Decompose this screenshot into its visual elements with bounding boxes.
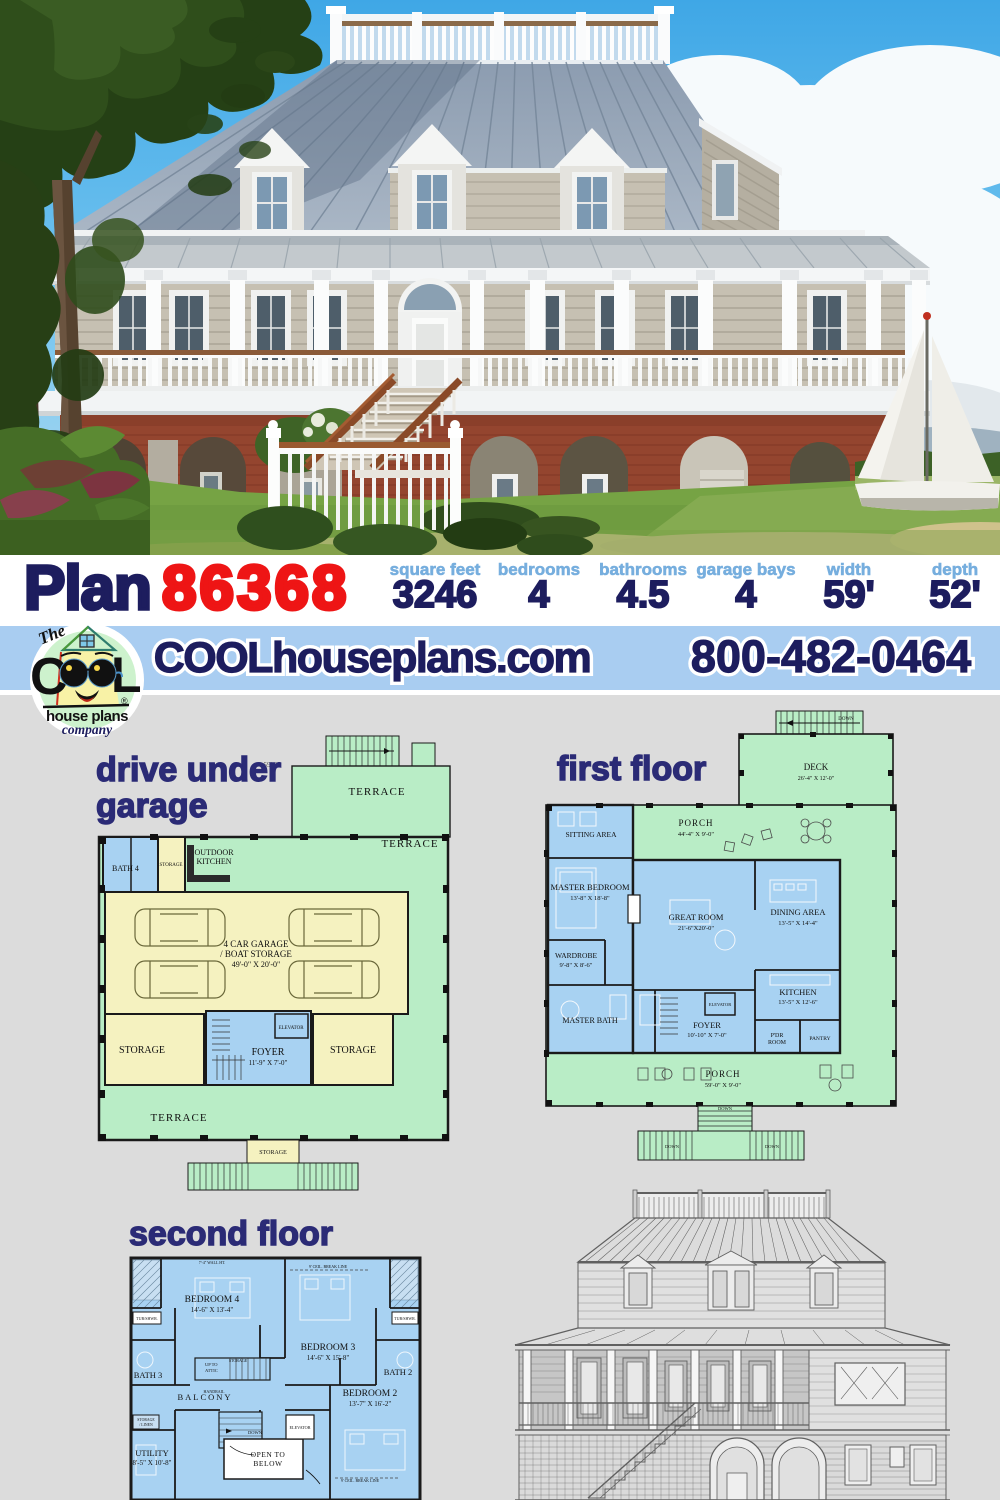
svg-text:BEDROOM 4: BEDROOM 4: [185, 1295, 240, 1305]
svg-text:TERRACE: TERRACE: [381, 838, 438, 850]
svg-text:FOYER: FOYER: [252, 1047, 285, 1058]
svg-text:ELEVATOR: ELEVATOR: [289, 1425, 310, 1430]
svg-text:BATH 2: BATH 2: [384, 1367, 413, 1377]
svg-text:STORAGE: STORAGE: [330, 1045, 376, 1056]
svg-text:DOWN: DOWN: [718, 1106, 733, 1111]
svg-text:BATH 3: BATH 3: [134, 1370, 163, 1380]
svg-text:ELEVATOR: ELEVATOR: [709, 1002, 732, 1007]
svg-text:OUTDOOR: OUTDOOR: [194, 848, 234, 857]
svg-text:9' CEIL. BREAK LINE: 9' CEIL. BREAK LINE: [309, 1264, 348, 1269]
svg-text:/ BOAT STORAGE: / BOAT STORAGE: [220, 949, 292, 959]
svg-text:KITCHEN: KITCHEN: [779, 987, 816, 997]
svg-text:TERRACE: TERRACE: [348, 786, 405, 798]
svg-text:11'-9" X 7'-0": 11'-9" X 7'-0": [249, 1059, 288, 1067]
svg-text:/ LINEN: / LINEN: [139, 1423, 153, 1427]
svg-text:OPEN TO: OPEN TO: [251, 1450, 286, 1459]
svg-text:TERRACE: TERRACE: [150, 1112, 207, 1124]
svg-text:STORAGE: STORAGE: [119, 1045, 165, 1056]
svg-text:HANDRAIL: HANDRAIL: [204, 1389, 225, 1394]
svg-text:BEDROOM 3: BEDROOM 3: [301, 1343, 356, 1353]
svg-text:DINING AREA: DINING AREA: [770, 907, 826, 917]
svg-text:DECK: DECK: [804, 762, 829, 772]
svg-text:BEDROOM 2: BEDROOM 2: [343, 1389, 398, 1399]
svg-text:800-482-0464: 800-482-0464: [691, 631, 971, 682]
svg-text:13'-5" X 14'-4": 13'-5" X 14'-4": [778, 920, 818, 927]
svg-text:59'-0" X 9'-0": 59'-0" X 9'-0": [705, 1082, 742, 1089]
svg-text:GREAT ROOM: GREAT ROOM: [669, 912, 724, 922]
svg-text:MASTER BATH: MASTER BATH: [562, 1016, 618, 1025]
svg-text:UTILITY: UTILITY: [135, 1448, 169, 1458]
svg-text:10'-10" X 7'-0": 10'-10" X 7'-0": [687, 1032, 727, 1039]
svg-text:7'-4" WALL HT.: 7'-4" WALL HT.: [199, 1260, 226, 1265]
svg-text:BELOW: BELOW: [253, 1459, 283, 1468]
svg-text:PORCH: PORCH: [678, 818, 713, 828]
svg-text:STORAGE: STORAGE: [137, 1418, 155, 1422]
svg-text:COOLhouseplans.com: COOLhouseplans.com: [154, 634, 591, 682]
svg-text:WARDROBE: WARDROBE: [555, 951, 598, 960]
svg-text:14'-6" X 13'-4": 14'-6" X 13'-4": [191, 1306, 234, 1314]
svg-text:DOWN: DOWN: [838, 717, 854, 722]
svg-text:STORAGE: STORAGE: [160, 863, 183, 868]
svg-text:ROOM: ROOM: [768, 1040, 787, 1046]
svg-text:DOWN: DOWN: [248, 1430, 263, 1435]
svg-text:TUB/SHWR.: TUB/SHWR.: [136, 1316, 158, 1321]
svg-text:PANTRY: PANTRY: [809, 1036, 830, 1042]
svg-text:13'-7" X 16'-2": 13'-7" X 16'-2": [349, 1400, 392, 1408]
svg-text:KITCHEN: KITCHEN: [196, 857, 231, 866]
svg-text:8'-5" X 10'-8": 8'-5" X 10'-8": [133, 1459, 172, 1467]
svg-text:UP TO: UP TO: [205, 1362, 218, 1367]
svg-text:P'DR: P'DR: [771, 1033, 784, 1039]
svg-text:9'-8" X 8'-6": 9'-8" X 8'-6": [560, 962, 593, 969]
svg-text:9' CEIL. BREAK LINE: 9' CEIL. BREAK LINE: [341, 1478, 380, 1483]
svg-text:13'-5" X 12'-6": 13'-5" X 12'-6": [778, 999, 818, 1006]
svg-text:DOWN: DOWN: [765, 1144, 780, 1149]
svg-text:44'-4" X 9'-0": 44'-4" X 9'-0": [678, 831, 715, 838]
svg-text:13'-8" X 18'-8": 13'-8" X 18'-8": [570, 895, 610, 902]
svg-text:PORCH: PORCH: [705, 1069, 740, 1079]
svg-text:21'-6"X20'-0": 21'-6"X20'-0": [678, 925, 715, 932]
svg-text:TUB/SHWR.: TUB/SHWR.: [394, 1316, 416, 1321]
svg-text:ELEVATOR: ELEVATOR: [278, 1026, 304, 1031]
svg-text:4 CAR GARAGE: 4 CAR GARAGE: [223, 939, 289, 949]
svg-text:SITTING AREA: SITTING AREA: [565, 830, 617, 839]
svg-text:26'-4" X 12'-0": 26'-4" X 12'-0": [798, 776, 835, 782]
svg-text:FOYER: FOYER: [693, 1020, 721, 1030]
svg-text:ATTIC: ATTIC: [205, 1368, 218, 1373]
svg-text:14'-6" X 15'-8": 14'-6" X 15'-8": [307, 1354, 350, 1362]
svg-text:DOWN: DOWN: [665, 1144, 680, 1149]
svg-text:STORAGE: STORAGE: [259, 1150, 287, 1156]
svg-text:STORAGE: STORAGE: [229, 1358, 248, 1363]
svg-text:49'-0" X 20'-0": 49'-0" X 20'-0": [232, 960, 281, 969]
svg-text:MASTER BEDROOM: MASTER BEDROOM: [550, 882, 630, 892]
svg-text:BATH 4: BATH 4: [112, 864, 139, 873]
